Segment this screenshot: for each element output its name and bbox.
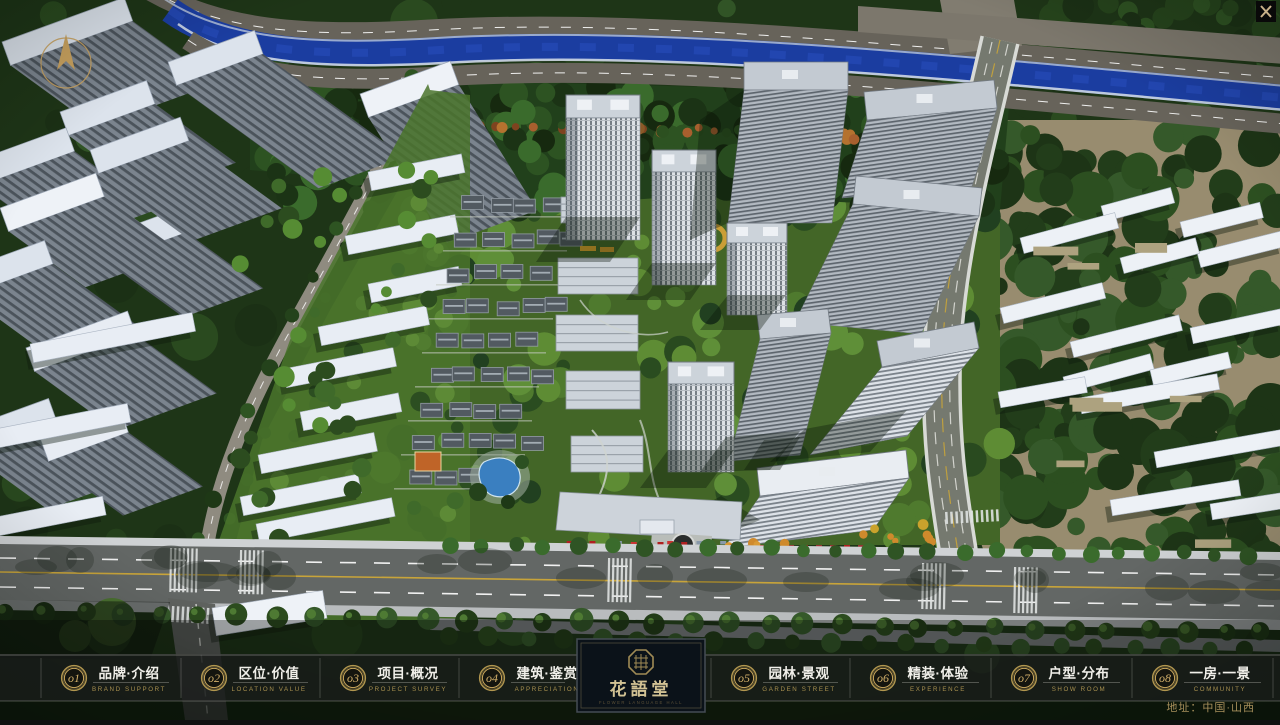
- svg-text:o1: o1: [68, 671, 80, 685]
- svg-text:SHOW ROOM: SHOW ROOM: [1052, 686, 1107, 693]
- svg-text:LOCATION VALUE: LOCATION VALUE: [231, 686, 306, 693]
- svg-text:o4: o4: [486, 671, 498, 685]
- svg-text:o5: o5: [738, 671, 750, 685]
- svg-text:建筑·鉴赏: 建筑·鉴赏: [516, 665, 578, 681]
- svg-text:o7: o7: [1018, 671, 1031, 685]
- svg-text:o2: o2: [208, 671, 220, 685]
- svg-text:花語堂: 花語堂: [610, 679, 673, 699]
- svg-text:FLOWER LANGUAGE HALL: FLOWER LANGUAGE HALL: [599, 700, 683, 705]
- svg-text:o3: o3: [347, 671, 359, 685]
- svg-text:EXPERIENCE: EXPERIENCE: [910, 686, 966, 693]
- svg-text:o6: o6: [877, 671, 889, 685]
- svg-text:BRAND SUPPORT: BRAND SUPPORT: [92, 686, 166, 693]
- svg-text:GARDEN STREET: GARDEN STREET: [762, 686, 835, 693]
- svg-text:COMMUNITY: COMMUNITY: [1194, 686, 1247, 693]
- svg-text:APPRECIATION: APPRECIATION: [515, 686, 580, 693]
- svg-text:户型·分布: 户型·分布: [1049, 665, 1110, 681]
- svg-text:一房·一景: 一房·一景: [1190, 665, 1251, 681]
- svg-text:PROJECT SURVEY: PROJECT SURVEY: [369, 686, 447, 693]
- svg-text:地址：中国·山西: 地址：中国·山西: [1166, 700, 1255, 714]
- svg-text:区位·价值: 区位·价值: [239, 665, 300, 681]
- svg-text:o8: o8: [1159, 671, 1171, 685]
- svg-text:园林·景观: 园林·景观: [769, 665, 830, 681]
- svg-text:精装·体验: 精装·体验: [908, 665, 969, 681]
- svg-text:品牌·介绍: 品牌·介绍: [99, 665, 160, 681]
- svg-text:项目·概况: 项目·概况: [378, 665, 439, 681]
